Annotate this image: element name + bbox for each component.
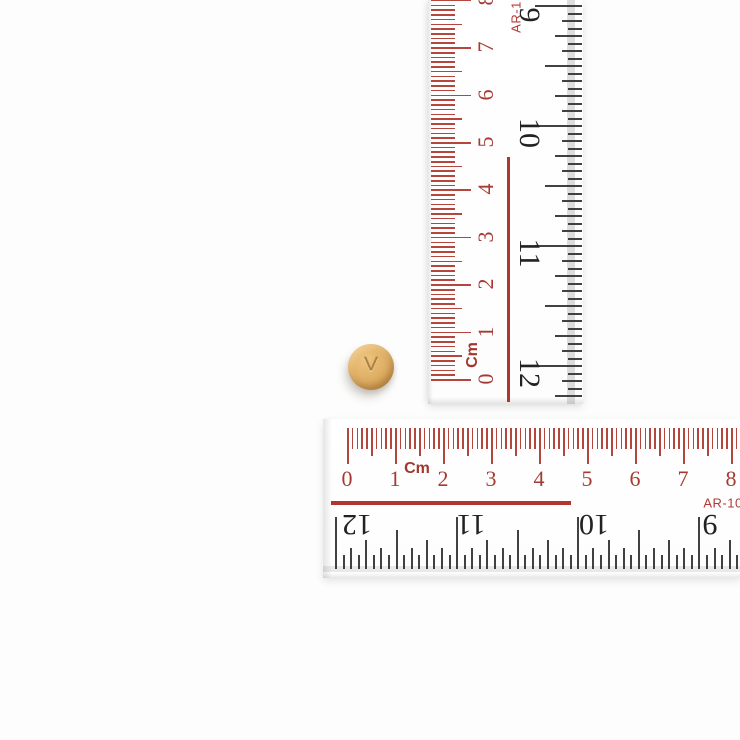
inch-tick <box>714 548 716 569</box>
inch-tick <box>568 163 582 165</box>
inch-tick <box>562 110 582 112</box>
cm-tick <box>431 270 455 272</box>
cm-tick <box>659 428 661 456</box>
cm-tick <box>525 428 527 449</box>
cm-tick <box>621 428 623 449</box>
cm-tick <box>431 322 455 324</box>
inch-tick <box>630 555 632 569</box>
inch-tick <box>517 530 519 569</box>
cm-tick <box>611 428 613 456</box>
cm-number: 0 <box>473 374 499 385</box>
cm-number: 5 <box>582 466 593 492</box>
inch-tick <box>568 208 582 210</box>
inch-tick <box>736 555 738 569</box>
inch-tick <box>568 328 582 330</box>
cm-tick <box>400 428 402 449</box>
inch-tick <box>555 215 582 217</box>
cm-tick <box>630 428 632 449</box>
inch-number: 12 <box>512 358 546 388</box>
inch-tick <box>509 555 511 569</box>
inch-tick <box>568 178 582 180</box>
cm-number: 7 <box>473 42 499 53</box>
inch-tick <box>555 155 582 157</box>
cm-tick <box>352 428 354 449</box>
inch-tick <box>568 373 582 375</box>
inch-tick <box>645 555 647 569</box>
cm-tick <box>457 428 459 449</box>
cm-tick <box>568 428 570 449</box>
cm-tick <box>405 428 407 449</box>
cm-number: 4 <box>534 466 545 492</box>
cm-tick <box>431 24 462 26</box>
inch-tick <box>358 555 360 569</box>
cm-tick <box>431 208 455 210</box>
inch-tick <box>449 555 451 569</box>
inch-tick <box>494 555 496 569</box>
inch-tick <box>562 140 582 142</box>
inch-tick <box>547 540 549 569</box>
cm-tick <box>510 428 512 449</box>
cm-tick <box>563 428 565 456</box>
cm-number: 1 <box>390 466 401 492</box>
inch-tick <box>568 13 582 15</box>
cm-number: 1 <box>473 326 499 337</box>
cm-tick <box>491 428 493 464</box>
inch-tick <box>373 555 375 569</box>
inch-tick <box>502 548 504 569</box>
cm-tick <box>486 428 488 449</box>
cm-tick <box>431 142 471 144</box>
cm-tick <box>431 0 471 1</box>
inch-tick <box>623 548 625 569</box>
cm-tick <box>431 303 455 305</box>
cm-tick <box>736 428 738 449</box>
inch-tick <box>568 148 582 150</box>
cm-tick <box>347 428 349 464</box>
inch-tick <box>403 555 405 569</box>
cm-tick <box>431 185 455 187</box>
inch-tick <box>555 335 582 337</box>
inch-number: 10 <box>512 118 546 148</box>
cm-tick <box>366 428 368 449</box>
cm-tick <box>558 428 560 449</box>
vertical-ruler: Cm AR-1 0123456781211109 <box>428 0 583 404</box>
inch-tick <box>441 548 443 569</box>
inch-tick <box>585 555 587 569</box>
cm-number: 6 <box>630 466 641 492</box>
vertical-ruler-scale: 0123456781211109 <box>428 0 583 404</box>
inch-tick <box>698 517 700 569</box>
cm-tick <box>431 104 455 106</box>
cm-tick <box>431 133 455 135</box>
cm-tick <box>431 175 455 177</box>
cm-tick <box>431 294 455 296</box>
inch-tick <box>545 185 582 187</box>
cm-tick <box>431 227 455 229</box>
cm-number: 4 <box>473 184 499 195</box>
cm-tick <box>544 428 546 449</box>
cm-tick <box>431 365 455 367</box>
inch-tick <box>568 73 582 75</box>
cm-tick <box>431 265 455 267</box>
cm-tick <box>431 114 455 116</box>
cm-tick <box>601 428 603 449</box>
inch-tick <box>691 555 693 569</box>
cm-tick <box>431 218 455 220</box>
inch-tick <box>433 555 435 569</box>
cm-tick <box>645 428 647 449</box>
cm-tick <box>431 289 455 291</box>
cm-tick <box>431 360 455 362</box>
cm-tick <box>431 374 455 376</box>
cm-tick <box>697 428 699 449</box>
horizontal-ruler-scale: 0123456781211109 <box>323 419 740 578</box>
cm-tick <box>664 428 666 449</box>
cm-tick <box>702 428 704 449</box>
cm-tick <box>431 170 455 172</box>
cm-tick <box>431 346 455 348</box>
cm-tick <box>573 428 575 449</box>
inch-tick <box>562 50 582 52</box>
cm-tick <box>431 279 455 281</box>
cm-tick <box>654 428 656 449</box>
cm-tick <box>431 5 455 7</box>
inch-tick <box>568 313 582 315</box>
cm-tick <box>443 428 445 464</box>
inch-tick <box>568 193 582 195</box>
inch-tick <box>545 305 582 307</box>
inch-number: 11 <box>512 239 546 268</box>
inch-tick <box>555 395 582 397</box>
cm-tick <box>371 428 373 456</box>
inch-tick <box>568 358 582 360</box>
cm-tick <box>431 85 455 87</box>
cm-tick <box>390 428 392 449</box>
inch-tick <box>668 540 670 569</box>
cm-tick <box>409 428 411 449</box>
cm-tick <box>467 428 469 456</box>
cm-tick <box>606 428 608 449</box>
cm-tick <box>505 428 507 449</box>
cm-tick <box>577 428 579 449</box>
cm-tick <box>433 428 435 449</box>
cm-tick <box>431 199 455 201</box>
inch-tick <box>600 555 602 569</box>
cm-tick <box>683 428 685 464</box>
cm-tick <box>376 428 378 449</box>
cm-tick <box>635 428 637 464</box>
inch-tick <box>335 517 337 569</box>
cm-tick <box>431 71 462 73</box>
cm-tick <box>431 351 455 353</box>
cm-tick <box>453 428 455 449</box>
inch-tick <box>418 555 420 569</box>
cm-tick <box>431 242 455 244</box>
cm-tick <box>431 109 455 111</box>
cm-tick <box>553 428 555 449</box>
cm-tick <box>419 428 421 456</box>
inch-tick <box>562 80 582 82</box>
horizontal-ruler: Cm AR-10 0123456781211109 <box>323 419 740 578</box>
inch-tick <box>562 230 582 232</box>
inch-tick <box>562 548 564 569</box>
cm-tick <box>431 261 462 263</box>
inch-number: 9 <box>703 507 718 541</box>
cm-tick <box>501 428 503 449</box>
cm-tick <box>431 189 471 191</box>
cm-tick <box>431 90 455 92</box>
inch-tick <box>661 555 663 569</box>
inch-tick <box>562 380 582 382</box>
cm-tick <box>431 38 455 40</box>
inch-tick <box>343 555 345 569</box>
cm-tick <box>529 428 531 449</box>
cm-tick <box>361 428 363 449</box>
cm-tick <box>431 204 455 206</box>
inch-tick <box>380 548 382 569</box>
inch-tick <box>592 548 594 569</box>
cm-tick <box>462 428 464 449</box>
cm-tick <box>431 28 455 30</box>
cm-tick <box>515 428 517 456</box>
inch-tick <box>562 260 582 262</box>
inch-tick <box>568 283 582 285</box>
inch-number: 12 <box>342 507 372 541</box>
pill-imprint-letter: V <box>357 352 386 378</box>
cm-tick <box>448 428 450 449</box>
cm-tick <box>431 275 455 277</box>
cm-tick <box>395 428 397 464</box>
photo-scene: Cm AR-1 0123456781211109 Cm AR-10 012345… <box>0 0 740 740</box>
cm-tick <box>534 428 536 449</box>
cm-tick <box>431 308 462 310</box>
cm-tick <box>431 57 455 59</box>
cm-number: 2 <box>473 279 499 290</box>
cm-tick <box>414 428 416 449</box>
inch-tick <box>568 343 582 345</box>
inch-tick <box>568 118 582 120</box>
inch-tick <box>471 548 473 569</box>
cm-tick <box>431 161 455 163</box>
inch-tick <box>396 530 398 569</box>
cm-tick <box>431 327 455 329</box>
cm-tick <box>707 428 709 456</box>
cm-tick <box>431 379 471 381</box>
cm-tick <box>431 246 455 248</box>
cm-tick <box>582 428 584 449</box>
inch-tick <box>562 20 582 22</box>
cm-tick <box>431 156 455 158</box>
inch-tick <box>638 530 640 569</box>
inch-tick <box>555 555 557 569</box>
inch-tick <box>568 388 582 390</box>
cm-tick <box>726 428 728 449</box>
inch-tick <box>676 555 678 569</box>
inch-tick <box>568 58 582 60</box>
cm-tick <box>431 147 455 149</box>
cm-tick <box>431 151 455 153</box>
inch-tick <box>524 555 526 569</box>
cm-tick <box>520 428 522 449</box>
cm-tick <box>640 428 642 449</box>
inch-tick <box>562 320 582 322</box>
cm-tick <box>431 61 455 63</box>
inch-number: 11 <box>457 507 486 541</box>
cm-tick <box>496 428 498 449</box>
pill: V <box>348 344 394 390</box>
cm-tick <box>431 370 455 372</box>
inch-tick <box>568 103 582 105</box>
cm-tick <box>431 42 455 44</box>
cm-number: 3 <box>473 231 499 242</box>
cm-tick <box>688 428 690 449</box>
cm-tick <box>472 428 474 449</box>
cm-tick <box>431 9 455 11</box>
inch-tick <box>411 548 413 569</box>
cm-number: 6 <box>473 89 499 100</box>
cm-tick <box>431 52 455 54</box>
cm-tick <box>731 428 733 464</box>
cm-tick <box>438 428 440 449</box>
cm-number: 8 <box>473 0 499 5</box>
inch-tick <box>555 95 582 97</box>
cm-tick <box>673 428 675 449</box>
cm-tick <box>717 428 719 449</box>
cm-tick <box>477 428 479 449</box>
cm-tick <box>649 428 651 449</box>
inch-tick <box>545 65 582 67</box>
cm-tick <box>431 19 455 21</box>
inch-tick <box>568 43 582 45</box>
inch-tick <box>608 540 610 569</box>
inch-tick <box>568 238 582 240</box>
inch-tick <box>532 548 534 569</box>
inch-tick <box>555 35 582 37</box>
cm-tick <box>431 332 471 334</box>
cm-number: 8 <box>726 466 737 492</box>
inch-tick <box>555 275 582 277</box>
cm-tick <box>431 313 455 315</box>
cm-number: 3 <box>486 466 497 492</box>
cm-tick <box>669 428 671 449</box>
cm-tick <box>431 213 462 215</box>
cm-tick <box>431 128 455 130</box>
cm-tick <box>597 428 599 449</box>
inch-tick <box>388 555 390 569</box>
cm-tick <box>357 428 359 449</box>
inch-tick <box>653 548 655 569</box>
cm-number: 0 <box>342 466 353 492</box>
inch-tick <box>568 223 582 225</box>
inch-tick <box>539 555 541 569</box>
cm-tick <box>431 284 471 286</box>
cm-tick <box>431 341 455 343</box>
inch-tick <box>486 540 488 569</box>
cm-tick <box>431 33 455 35</box>
inch-tick <box>464 555 466 569</box>
cm-tick <box>429 428 431 449</box>
cm-tick <box>678 428 680 449</box>
inch-tick <box>568 268 582 270</box>
cm-tick <box>712 428 714 449</box>
inch-tick <box>568 28 582 30</box>
inch-tick <box>562 290 582 292</box>
inch-tick <box>562 350 582 352</box>
inch-tick <box>350 548 352 569</box>
inch-tick <box>426 540 428 569</box>
cm-tick <box>431 99 455 101</box>
cm-tick <box>431 237 471 239</box>
cm-tick <box>431 76 455 78</box>
inch-tick <box>365 540 367 569</box>
cm-number: 2 <box>438 466 449 492</box>
cm-tick <box>431 14 455 16</box>
cm-tick <box>431 118 462 120</box>
cm-tick <box>431 47 471 49</box>
cm-tick <box>431 256 455 258</box>
inch-tick <box>568 298 582 300</box>
cm-tick <box>539 428 541 464</box>
inch-tick <box>706 555 708 569</box>
inch-tick <box>729 540 731 569</box>
cm-tick <box>481 428 483 449</box>
inch-number: 10 <box>579 507 609 541</box>
cm-tick <box>431 232 455 234</box>
cm-tick <box>431 223 455 225</box>
cm-number: 5 <box>473 137 499 148</box>
cm-tick <box>431 180 455 182</box>
inch-tick <box>570 555 572 569</box>
inch-tick <box>568 133 582 135</box>
cm-tick <box>693 428 695 449</box>
cm-tick <box>431 80 455 82</box>
cm-tick <box>721 428 723 449</box>
inch-tick <box>683 548 685 569</box>
inch-tick <box>615 555 617 569</box>
inch-tick <box>568 253 582 255</box>
cm-tick <box>431 123 455 125</box>
cm-tick <box>431 66 455 68</box>
inch-tick <box>562 170 582 172</box>
cm-tick <box>424 428 426 449</box>
inch-tick <box>562 200 582 202</box>
cm-number: 7 <box>678 466 689 492</box>
cm-tick <box>431 194 455 196</box>
inch-number: 9 <box>512 8 546 23</box>
cm-tick <box>616 428 618 449</box>
cm-tick <box>625 428 627 449</box>
cm-tick <box>385 428 387 449</box>
cm-tick <box>431 336 455 338</box>
cm-tick <box>431 137 455 139</box>
cm-tick <box>431 298 455 300</box>
cm-tick <box>592 428 594 449</box>
cm-tick <box>431 166 462 168</box>
cm-tick <box>549 428 551 449</box>
inch-tick <box>568 88 582 90</box>
inch-tick <box>721 555 723 569</box>
cm-tick <box>431 355 462 357</box>
inch-tick <box>479 555 481 569</box>
cm-tick <box>431 317 455 319</box>
cm-tick <box>431 251 455 253</box>
cm-tick <box>587 428 589 464</box>
cm-tick <box>381 428 383 449</box>
cm-tick <box>431 95 471 97</box>
